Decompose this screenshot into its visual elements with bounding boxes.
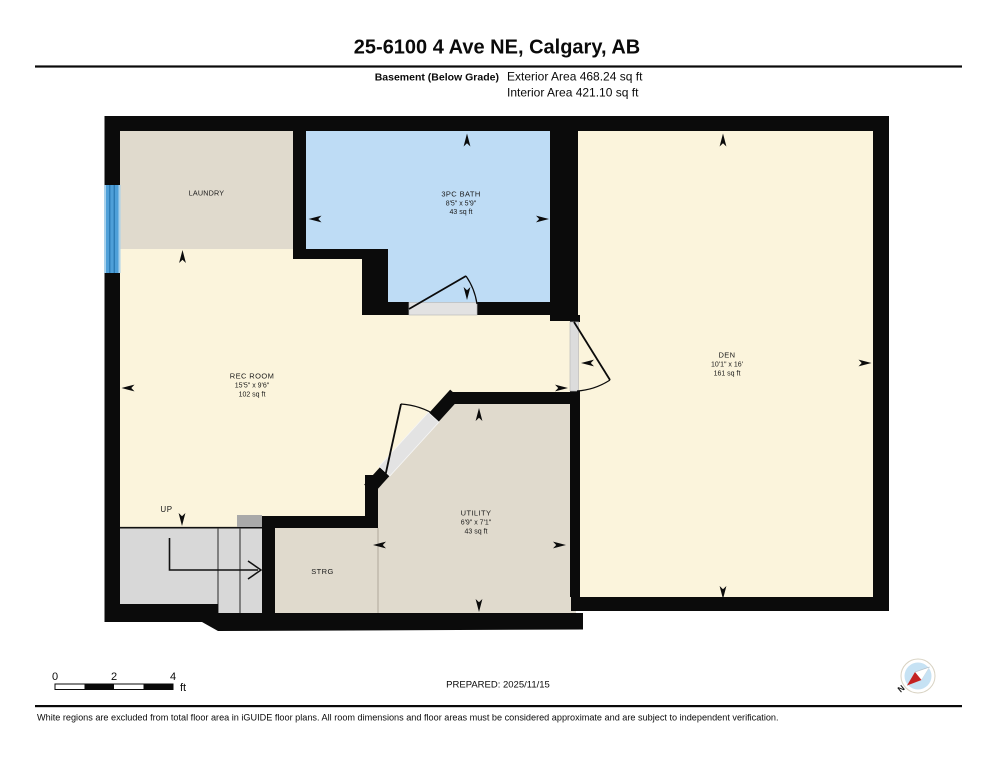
svg-text:15'5" x 9'6": 15'5" x 9'6" <box>235 383 270 390</box>
svg-text:White regions are excluded fro: White regions are excluded from total fl… <box>37 713 779 723</box>
svg-text:LAUNDRY: LAUNDRY <box>189 189 225 198</box>
svg-text:ft: ft <box>180 682 186 694</box>
svg-text:PREPARED: 2025/11/15: PREPARED: 2025/11/15 <box>446 680 550 691</box>
svg-text:3PC BATH: 3PC BATH <box>441 190 480 199</box>
svg-text:43 sq ft: 43 sq ft <box>450 209 473 216</box>
svg-text:Basement (Below Grade): Basement (Below Grade) <box>375 72 499 84</box>
svg-text:Exterior Area 468.24 sq ft: Exterior Area 468.24 sq ft <box>507 70 643 84</box>
svg-text:161 sq ft: 161 sq ft <box>714 371 741 378</box>
svg-text:STRG: STRG <box>311 567 333 576</box>
svg-text:0: 0 <box>52 671 58 683</box>
svg-text:REC ROOM: REC ROOM <box>230 372 274 381</box>
svg-text:UP: UP <box>160 505 172 514</box>
svg-text:6'9" x 7'1": 6'9" x 7'1" <box>461 520 492 527</box>
svg-text:43 sq ft: 43 sq ft <box>465 529 488 536</box>
svg-text:UTILITY: UTILITY <box>461 509 492 518</box>
svg-text:102 sq ft: 102 sq ft <box>239 392 266 399</box>
svg-text:DEN: DEN <box>718 351 735 360</box>
svg-text:8'5" x 5'9": 8'5" x 5'9" <box>446 201 477 208</box>
svg-text:25-6100 4 Ave NE, Calgary, AB: 25-6100 4 Ave NE, Calgary, AB <box>354 37 640 59</box>
svg-text:Interior Area 421.10 sq ft: Interior Area 421.10 sq ft <box>507 86 639 100</box>
svg-text:2: 2 <box>111 671 117 683</box>
svg-text:4: 4 <box>170 671 176 683</box>
svg-text:10'1" x 16': 10'1" x 16' <box>711 362 743 369</box>
